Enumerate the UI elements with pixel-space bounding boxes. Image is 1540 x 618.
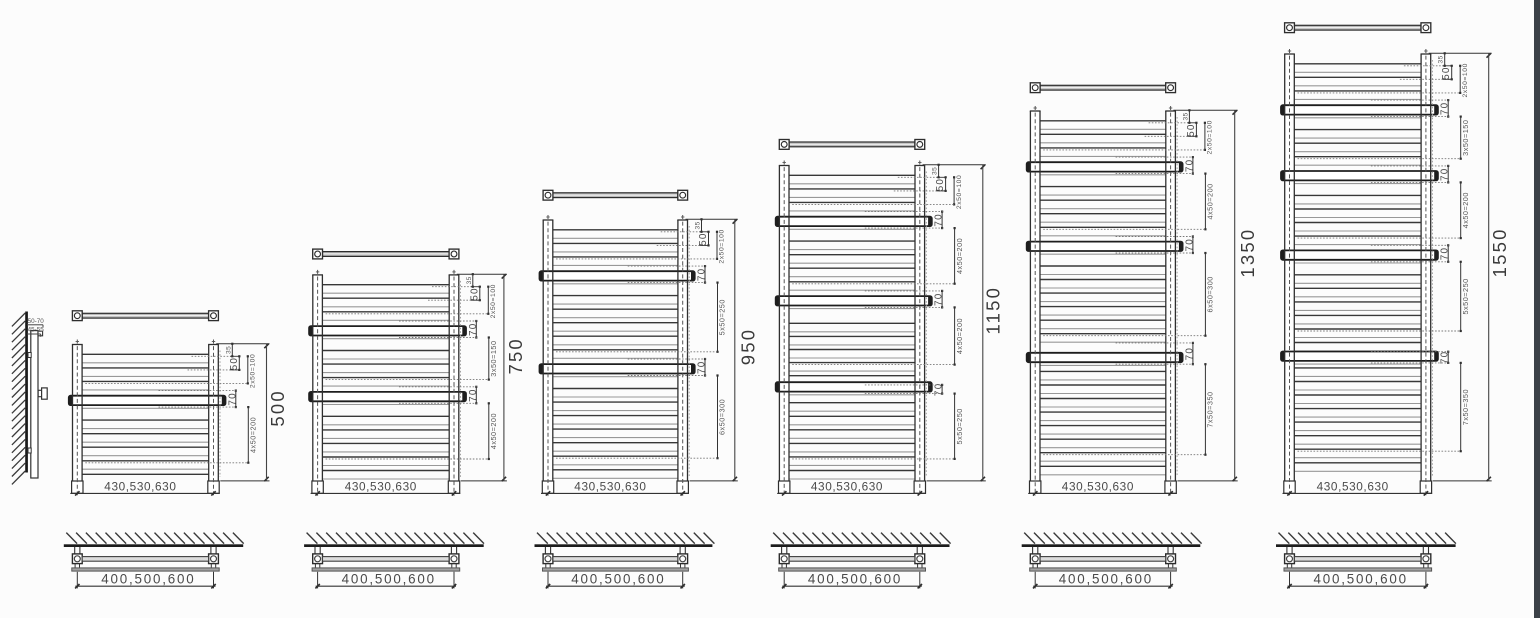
svg-text:4x50=200: 4x50=200: [955, 238, 964, 274]
svg-text:2x50=100: 2x50=100: [1207, 120, 1214, 154]
svg-text:2x50=100: 2x50=100: [719, 229, 726, 263]
svg-text:400,500,600: 400,500,600: [1059, 572, 1153, 587]
svg-text:400,500,600: 400,500,600: [808, 572, 902, 587]
svg-text:4x50=200: 4x50=200: [1206, 183, 1215, 219]
svg-text:50: 50: [698, 232, 709, 246]
svg-text:4x50=200: 4x50=200: [489, 413, 498, 449]
svg-text:50: 50: [935, 178, 946, 192]
svg-text:2x50=100: 2x50=100: [956, 175, 963, 209]
svg-text:2x50=100: 2x50=100: [250, 354, 257, 388]
svg-text:70: 70: [1184, 347, 1195, 361]
svg-text:70: 70: [1184, 159, 1195, 173]
svg-text:70: 70: [468, 388, 479, 402]
svg-text:70: 70: [1440, 167, 1451, 181]
svg-text:1150: 1150: [982, 286, 1003, 335]
svg-text:5x50=250: 5x50=250: [1461, 278, 1470, 314]
svg-text:6x50=300: 6x50=300: [718, 399, 727, 435]
svg-text:6x50=300: 6x50=300: [1206, 276, 1215, 312]
svg-text:4x50=200: 4x50=200: [1461, 192, 1470, 228]
svg-text:50: 50: [1186, 123, 1197, 137]
svg-text:35: 35: [1438, 55, 1445, 63]
svg-text:4x50=200: 4x50=200: [955, 318, 964, 354]
svg-text:1550: 1550: [1489, 227, 1510, 277]
svg-text:35: 35: [466, 276, 473, 284]
svg-text:4x50=200: 4x50=200: [249, 417, 258, 453]
svg-text:5x50=250: 5x50=250: [955, 408, 964, 444]
svg-text:50: 50: [1441, 66, 1452, 80]
svg-text:430,530,630: 430,530,630: [574, 479, 646, 493]
svg-text:400,500,600: 400,500,600: [101, 572, 195, 587]
svg-text:430,530,630: 430,530,630: [811, 479, 883, 493]
svg-text:400,500,600: 400,500,600: [342, 572, 436, 587]
svg-text:35: 35: [932, 167, 939, 175]
svg-text:1350: 1350: [1237, 228, 1258, 278]
svg-text:50-70: 50-70: [28, 318, 45, 325]
svg-text:45-55: 45-55: [28, 327, 45, 334]
svg-text:70: 70: [1184, 238, 1195, 252]
svg-text:70: 70: [1440, 351, 1451, 365]
svg-text:400,500,600: 400,500,600: [1314, 572, 1408, 587]
svg-text:500: 500: [267, 389, 288, 426]
svg-text:7x50=350: 7x50=350: [1461, 389, 1470, 425]
svg-text:430,530,630: 430,530,630: [345, 479, 417, 493]
svg-text:5x50=250: 5x50=250: [718, 299, 727, 335]
svg-text:750: 750: [505, 337, 526, 374]
svg-text:70: 70: [227, 392, 238, 406]
svg-text:950: 950: [738, 328, 759, 365]
svg-text:70: 70: [934, 213, 945, 227]
svg-text:2x50=100: 2x50=100: [1462, 63, 1469, 97]
svg-text:70: 70: [1440, 102, 1451, 116]
svg-text:430,530,630: 430,530,630: [104, 479, 176, 493]
svg-text:3x50=150: 3x50=150: [1461, 120, 1470, 156]
svg-text:35: 35: [1182, 112, 1189, 120]
svg-text:430,530,630: 430,530,630: [1317, 479, 1389, 493]
svg-text:70: 70: [697, 360, 708, 374]
svg-text:70: 70: [697, 268, 708, 282]
svg-text:50: 50: [229, 357, 240, 371]
svg-text:400,500,600: 400,500,600: [571, 572, 665, 587]
svg-text:70: 70: [934, 292, 945, 306]
svg-text:35: 35: [225, 346, 232, 354]
svg-text:7x50=350: 7x50=350: [1206, 391, 1215, 427]
svg-text:2x50=100: 2x50=100: [490, 284, 497, 318]
svg-text:70: 70: [1440, 247, 1451, 261]
svg-text:3x50=150: 3x50=150: [489, 340, 498, 376]
svg-text:430,530,630: 430,530,630: [1062, 479, 1134, 493]
svg-text:70: 70: [468, 322, 479, 336]
svg-text:50: 50: [469, 287, 480, 301]
svg-text:35: 35: [695, 221, 702, 229]
